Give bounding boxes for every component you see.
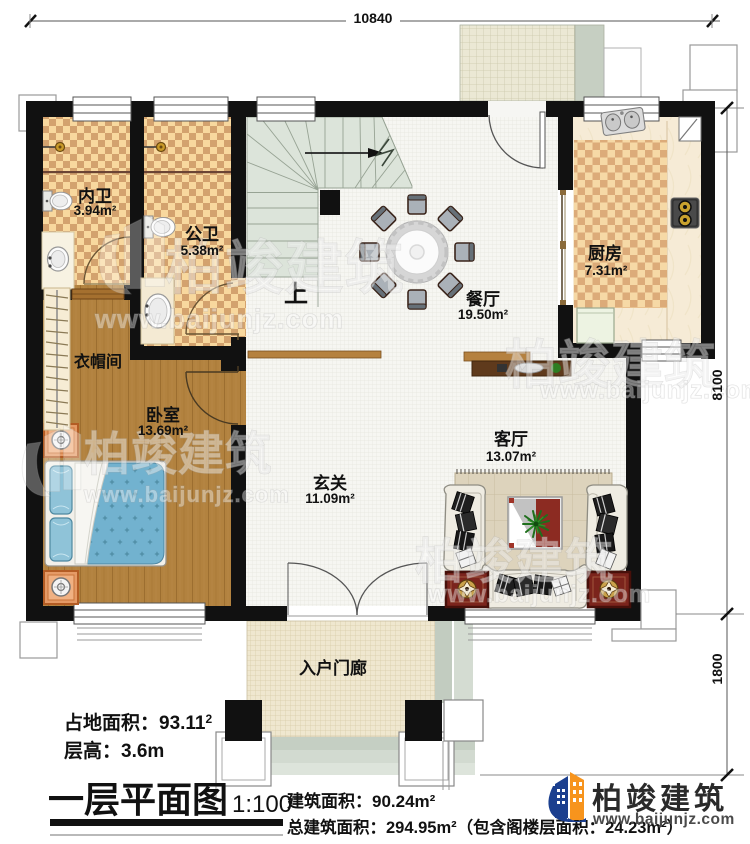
svg-text:13.07m²: 13.07m² <box>486 449 537 464</box>
svg-text:建筑面积：90.24m²: 建筑面积：90.24m² <box>287 791 436 811</box>
svg-text:公卫: 公卫 <box>185 225 219 244</box>
svg-text:www.baijunjz.com: www.baijunjz.com <box>592 811 735 828</box>
svg-text:1800: 1800 <box>709 653 725 684</box>
svg-text:入户门廊: 入户门廊 <box>299 658 367 678</box>
svg-text:衣帽间: 衣帽间 <box>74 352 122 371</box>
svg-text:11.09m²: 11.09m² <box>305 491 355 506</box>
svg-text:餐厅: 餐厅 <box>466 289 500 309</box>
svg-text:一层平面图: 一层平面图 <box>48 779 228 820</box>
svg-text:www.baijunjz.com: www.baijunjz.com <box>427 581 651 608</box>
svg-text:5.38m²: 5.38m² <box>181 243 224 258</box>
svg-text:19.50m²: 19.50m² <box>458 307 509 322</box>
svg-text:占地面积：93.112: 占地面积：93.112 <box>64 711 213 734</box>
svg-text:卧室: 卧室 <box>146 405 180 425</box>
svg-text:3.94m²: 3.94m² <box>74 203 117 218</box>
svg-text:层高：3.6m: 层高：3.6m <box>64 739 164 762</box>
svg-text:厨房: 厨房 <box>588 243 622 263</box>
svg-text:1:100: 1:100 <box>232 791 292 818</box>
svg-text:13.69m²: 13.69m² <box>138 423 189 438</box>
svg-text:客厅: 客厅 <box>493 429 528 449</box>
svg-text:8100: 8100 <box>709 369 725 400</box>
svg-text:玄关: 玄关 <box>313 473 347 493</box>
svg-text:www.baijunjz.com: www.baijunjz.com <box>83 482 290 507</box>
svg-text:7.31m²: 7.31m² <box>585 263 628 278</box>
svg-text:10840: 10840 <box>354 10 393 26</box>
svg-text:www.baijunjz.com: www.baijunjz.com <box>94 304 344 334</box>
